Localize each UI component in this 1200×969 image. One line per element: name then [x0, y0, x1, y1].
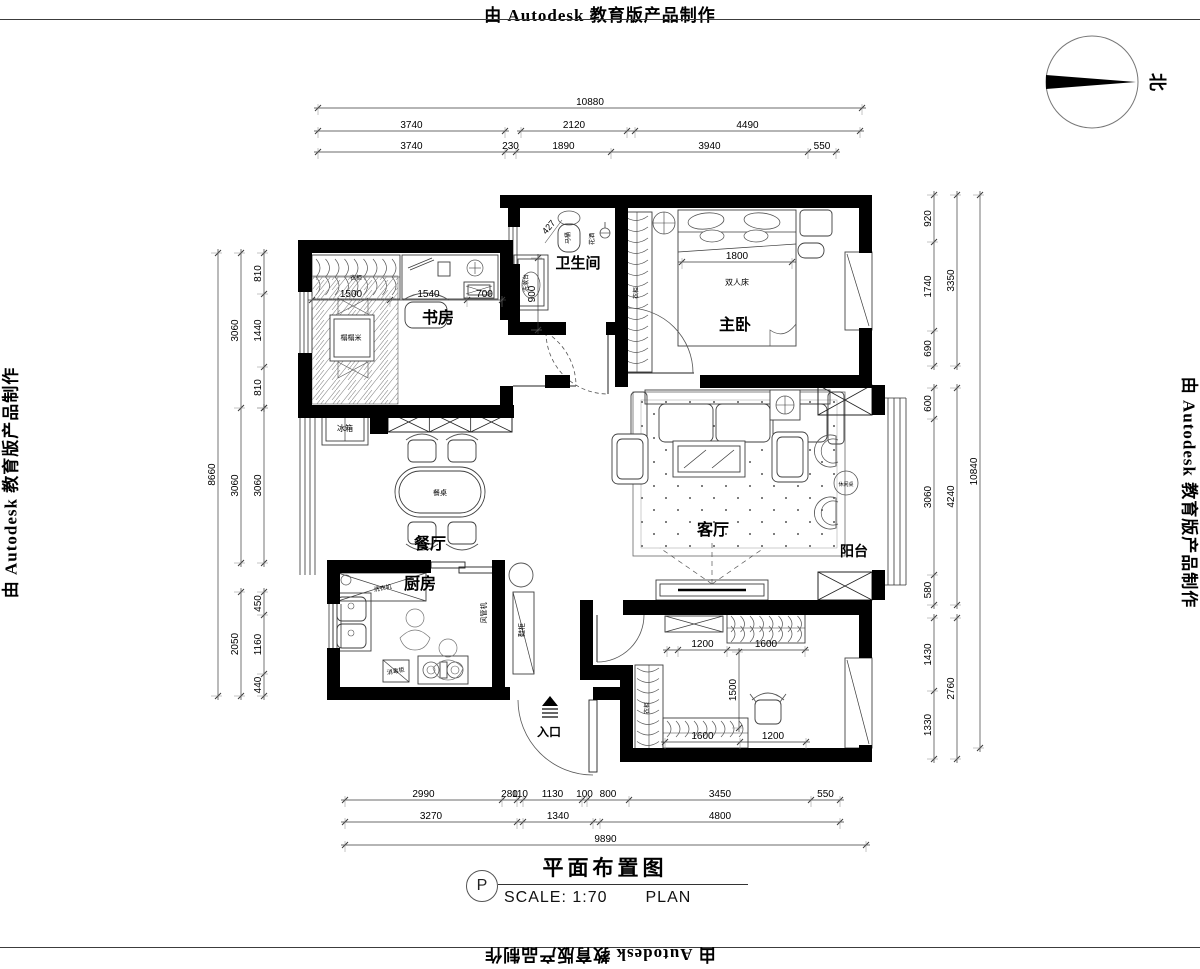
svg-text:衣柜: 衣柜: [632, 287, 640, 299]
dim-right-total: 10840: [969, 191, 984, 752]
svg-text:580: 580: [923, 581, 934, 598]
svg-text:洗漱台: 洗漱台: [522, 274, 530, 292]
dim-bottom-total: 9890: [341, 834, 870, 852]
title-underline: [498, 884, 748, 885]
svg-text:4490: 4490: [736, 120, 759, 131]
svg-text:3450: 3450: [709, 789, 732, 800]
svg-text:休闲桌: 休闲桌: [838, 481, 853, 488]
svg-text:1430: 1430: [923, 643, 934, 666]
dim-bed-width: 1800: [678, 251, 796, 269]
room-label-入口: 入口: [537, 725, 561, 739]
autodesk-banner-right: 由 Autodesk 教育版产品制作: [1179, 343, 1200, 643]
plan-tag-circle: P: [466, 870, 498, 902]
scale-text: SCALE: 1:70PLAN: [504, 889, 691, 907]
svg-text:入口: 入口: [537, 725, 561, 739]
svg-text:阳台: 阳台: [840, 543, 868, 559]
svg-text:4240: 4240: [946, 485, 957, 508]
svg-text:2760: 2760: [946, 677, 957, 700]
annotation-10-餐桌: 餐桌: [433, 488, 447, 497]
svg-text:3350: 3350: [946, 269, 957, 292]
dim-top-row3: 374023018903940550: [314, 141, 840, 159]
svg-text:鞋柜: 鞋柜: [517, 623, 526, 637]
svg-text:消毒柜: 消毒柜: [386, 666, 405, 677]
dim-bottom-row2-b: 1340: [519, 811, 597, 829]
svg-text:洗衣机: 洗衣机: [373, 583, 392, 594]
room-label-主卧: 主卧: [719, 315, 751, 334]
svg-text:440: 440: [253, 676, 264, 693]
autodesk-banner-left: 由 Autodesk 教育版产品制作: [0, 333, 22, 633]
dim-top-row2-a: 3740: [314, 120, 509, 138]
compass-needle-icon: [1046, 75, 1136, 89]
svg-text:100: 100: [576, 789, 593, 800]
dim-bottom-row2-a: 3270: [341, 811, 521, 829]
svg-text:4800: 4800: [709, 811, 732, 822]
scale-value: SCALE: 1:70: [504, 889, 608, 906]
dim-room2-depth: 1500: [728, 648, 743, 732]
svg-text:230: 230: [502, 141, 519, 152]
svg-text:810: 810: [253, 379, 264, 396]
annotation-2-花洒: 花洒: [588, 233, 596, 245]
svg-text:920: 920: [923, 210, 934, 227]
svg-text:3940: 3940: [698, 141, 721, 152]
svg-text:10840: 10840: [969, 457, 980, 485]
svg-text:9890: 9890: [594, 834, 617, 845]
drawing-title: 平面布置图: [500, 852, 710, 882]
north-label: 北: [1147, 73, 1167, 91]
svg-text:衣柜: 衣柜: [643, 702, 651, 714]
svg-text:1130: 1130: [542, 789, 564, 800]
svg-text:冰箱: 冰箱: [337, 423, 353, 433]
annotation-6-衣柜: 衣柜: [350, 274, 362, 282]
svg-text:主卧: 主卧: [719, 315, 751, 334]
svg-text:1440: 1440: [253, 319, 264, 342]
svg-text:风管机: 风管机: [479, 603, 488, 624]
svg-text:3060: 3060: [230, 474, 241, 497]
dim-right-inner-a: 9201740690: [923, 191, 938, 370]
annotation-15-休闲桌: 休闲桌: [838, 481, 853, 488]
svg-text:3060: 3060: [230, 319, 241, 342]
svg-text:450: 450: [253, 595, 264, 612]
svg-text:卫生间: 卫生间: [555, 254, 600, 272]
dim-right-inner-c: 14301330: [923, 614, 938, 763]
svg-text:2050: 2050: [230, 632, 241, 655]
svg-text:餐桌: 餐桌: [433, 488, 447, 497]
annotation-9-冰箱: 冰箱: [337, 423, 353, 433]
dim-right-inner-b: 6003060580: [923, 384, 938, 609]
room-label-餐厅: 餐厅: [413, 534, 446, 553]
north-compass: 北: [1046, 36, 1167, 128]
dim-right-mid-a: 3350: [946, 191, 961, 370]
room-label-书房: 书房: [422, 308, 454, 327]
svg-text:1160: 1160: [253, 633, 264, 655]
svg-text:600: 600: [923, 395, 934, 412]
dim-left-total: 8660: [207, 249, 222, 700]
svg-text:餐厅: 餐厅: [413, 534, 446, 553]
room-label-客厅: 客厅: [697, 520, 729, 539]
dim-left-mid-a: 30603060: [230, 249, 245, 567]
dim-top-row2-b: 2120: [517, 120, 631, 138]
svg-text:10880: 10880: [576, 97, 604, 108]
svg-text:1800: 1800: [726, 251, 749, 262]
annotation-0-双人床: 双人床: [725, 277, 749, 287]
svg-text:1600: 1600: [755, 639, 778, 650]
svg-text:1340: 1340: [547, 811, 570, 822]
room-label-厨房: 厨房: [404, 574, 436, 593]
svg-text:1200: 1200: [691, 639, 714, 650]
dim-left-mid-b: 2050: [230, 588, 245, 700]
svg-text:3740: 3740: [400, 120, 423, 131]
svg-text:550: 550: [817, 789, 834, 800]
dim-left-inner-c: 4501160440: [253, 588, 268, 700]
svg-text:马桶: 马桶: [564, 232, 572, 244]
svg-text:1540: 1540: [417, 289, 440, 300]
annotation-4-427: 427: [540, 218, 557, 236]
annotation-1-马桶: 马桶: [564, 232, 572, 244]
svg-text:1200: 1200: [762, 731, 785, 742]
svg-text:110: 110: [512, 789, 528, 800]
svg-text:双人床: 双人床: [725, 277, 749, 287]
svg-text:1740: 1740: [923, 275, 934, 298]
svg-text:1500: 1500: [340, 289, 363, 300]
svg-text:810: 810: [253, 265, 264, 282]
dim-bottom-row2-c: 4800: [596, 811, 844, 829]
annotation-11-洗衣机: 洗衣机: [373, 583, 392, 594]
svg-text:550: 550: [814, 141, 831, 152]
svg-text:厨房: 厨房: [404, 574, 436, 593]
dim-top-row2-c: 4490: [631, 120, 864, 138]
floor-plan-drawing: 1088037402120449037402301890394055029902…: [0, 0, 1200, 960]
dim-right-mid-c: 2760: [946, 614, 961, 763]
svg-text:书房: 书房: [422, 308, 454, 327]
svg-text:花洒: 花洒: [588, 233, 596, 245]
dim-room2-bottom: 16001200: [661, 731, 810, 749]
autodesk-banner-bottom: 由 Autodesk 教育版产品制作: [0, 944, 1200, 969]
top-border-line: [0, 19, 1200, 20]
svg-text:2120: 2120: [563, 120, 586, 131]
svg-text:1330: 1330: [923, 713, 934, 736]
dim-bottom-row1: 299028011011301008003450550: [341, 789, 844, 807]
svg-text:客厅: 客厅: [697, 520, 729, 539]
svg-text:8660: 8660: [207, 463, 218, 486]
annotation-5-榻榻米: 榻榻米: [341, 333, 362, 342]
plan-word: PLAN: [646, 889, 692, 906]
annotation-3-洗漱台: 洗漱台: [522, 274, 530, 292]
svg-text:3060: 3060: [923, 485, 934, 508]
annotation-12-消毒柜: 消毒柜: [386, 666, 405, 677]
svg-text:1500: 1500: [728, 678, 739, 701]
room-label-卫生间: 卫生间: [555, 254, 600, 272]
dim-top-total: 10880: [314, 97, 866, 115]
dim-left-inner-b: 3060: [253, 404, 268, 567]
svg-text:2990: 2990: [412, 789, 435, 800]
dim-left-inner-a: 8101440810: [253, 249, 268, 412]
room-label-阳台: 阳台: [840, 543, 868, 559]
annotation-14-鞋柜: 鞋柜: [517, 623, 526, 637]
svg-text:3270: 3270: [420, 811, 443, 822]
svg-text:1890: 1890: [552, 141, 575, 152]
dim-right-mid-b: 4240: [946, 384, 961, 609]
annotation-13-风管机: 风管机: [479, 603, 488, 624]
autodesk-banner-top: 由 Autodesk 教育版产品制作: [0, 1, 1200, 26]
svg-text:3060: 3060: [253, 474, 264, 497]
svg-text:690: 690: [923, 340, 934, 357]
annotation-7-衣柜: 衣柜: [632, 287, 640, 299]
svg-text:3740: 3740: [400, 141, 423, 152]
svg-text:榻榻米: 榻榻米: [341, 333, 362, 342]
annotation-8-衣柜: 衣柜: [643, 702, 651, 714]
svg-text:1600: 1600: [691, 731, 714, 742]
svg-text:700: 700: [476, 289, 493, 300]
svg-text:800: 800: [600, 789, 617, 800]
svg-text:427: 427: [540, 218, 557, 236]
svg-text:衣柜: 衣柜: [350, 274, 362, 282]
